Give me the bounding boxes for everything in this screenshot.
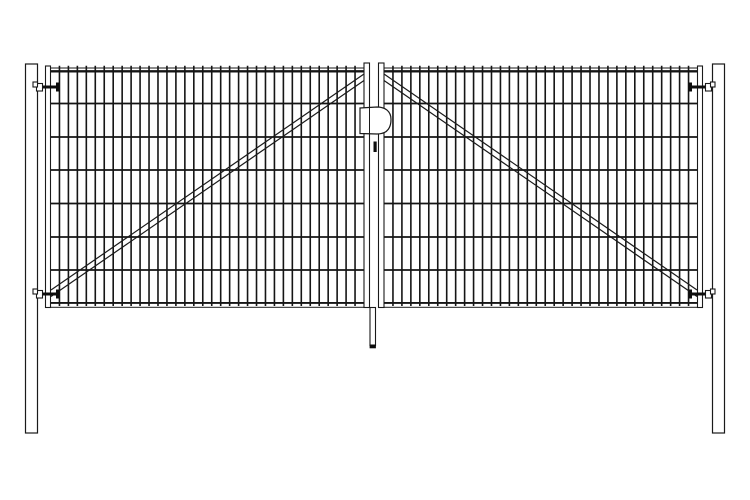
left-gate-leaf (46, 63, 370, 308)
right-post (713, 64, 725, 433)
right-gate-leaf (379, 63, 703, 308)
lock-cylinder-mark (374, 142, 377, 153)
right-leaf-diagonal-brace (384, 74, 697, 297)
drawing-viewport (0, 0, 750, 500)
drop-rod (370, 308, 376, 349)
left-leaf-diagonal-brace (51, 74, 364, 297)
gate-technical-drawing (0, 0, 750, 500)
lock-case (360, 107, 391, 134)
left-post (26, 64, 38, 433)
